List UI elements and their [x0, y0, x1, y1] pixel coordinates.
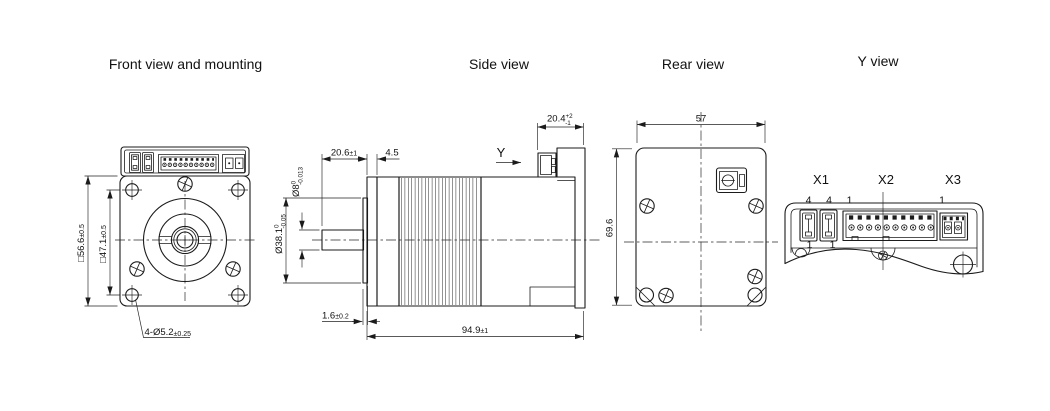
rear-screw-top-right [747, 197, 764, 214]
y-view-title: Y view [858, 53, 900, 69]
label-x3: X3 [945, 172, 961, 187]
mounting-hole-top-left [122, 180, 142, 200]
front-body [115, 175, 255, 306]
front-view-title: Front view and mounting [109, 56, 262, 72]
dim-body-width: □56.6±0.5 [76, 176, 118, 306]
front-flange [367, 177, 377, 306]
y-connector-x1 [800, 210, 837, 241]
side-body [312, 148, 600, 308]
dim-flange-thickness: 4.5 [357, 148, 400, 176]
dim-hole-spacing-text: □47.1±0.5 [98, 225, 109, 263]
left-boss-hole [796, 249, 807, 254]
dim-mounting-holes: 4-Ø5.2±0.25 [136, 300, 192, 339]
mounting-hole-bottom-right [228, 285, 248, 305]
rear-screw-top-left [638, 197, 655, 214]
dim-rear-height-text: 69.6 [605, 219, 616, 238]
dim-mounting-holes-text: 4-Ø5.2±0.25 [145, 327, 192, 338]
y-connector-x2 [843, 211, 937, 241]
dim-hole-spacing: □47.1±0.5 [98, 190, 121, 295]
technical-drawing-page: Front view and mounting [0, 0, 1050, 411]
dim-total-length: 94.9±1 [367, 311, 584, 340]
rear-body [624, 112, 778, 332]
x1-connector-b [820, 210, 837, 241]
dim-total-length-text: 94.9±1 [462, 325, 488, 336]
mounting-hole-top-right [228, 180, 248, 200]
rear-view-title: Rear view [662, 56, 725, 72]
dim-rear-width-text: 57 [696, 114, 707, 125]
dim-flange-thickness-text: 4.5 [385, 148, 398, 159]
dim-pilot-diameter: Ø38.10-0.05 [273, 198, 361, 283]
dim-body-width-text: □56.6±0.5 [76, 224, 87, 262]
screw-right [224, 260, 241, 277]
dim-shaft-diameter-text: Ø80-0.013 [290, 166, 304, 197]
front-connector-x1a [130, 153, 141, 173]
dim-shaft-diameter: Ø80-0.013 [290, 166, 319, 267]
label-x1: X1 [813, 172, 829, 187]
screw-left [128, 260, 145, 277]
x1a-pin-bottom: 1 [807, 239, 813, 251]
side-view: Side view Y [273, 56, 600, 340]
y-marker-text: Y [497, 145, 506, 160]
front-view: Front view and mounting [76, 56, 262, 338]
label-x2: X2 [878, 172, 894, 187]
x1-connector-a [800, 210, 817, 241]
side-connector-bump [538, 153, 556, 177]
mounting-hole-bottom-left [122, 285, 142, 305]
dim-pilot-diameter-text: Ø38.10-0.05 [273, 214, 287, 254]
x1b-pin-bottom: 1 [830, 239, 836, 251]
x3-pin-first: 1 [939, 195, 945, 207]
gearbox-ribbed-housing [399, 177, 481, 306]
front-connector-strip [121, 147, 249, 176]
front-connector-x1b [143, 153, 154, 173]
x1b-pin-top: 4 [826, 195, 832, 207]
rear-hole-bottom-right [748, 288, 762, 302]
y-view: Y view [785, 53, 983, 278]
dim-connector-height-text: 20.4+2-1 [547, 113, 573, 127]
dim-pilot-height-text: 1.6±0.2 [322, 311, 349, 322]
rotary-switch [717, 168, 747, 193]
front-connector-x3 [223, 155, 245, 173]
dim-shaft-length-text: 20.6±1 [331, 148, 357, 159]
gearbox-front-section [377, 177, 399, 306]
rear-screw-bottom-right [746, 268, 763, 285]
rear-hole-bottom-left [640, 288, 654, 302]
x2-pin-first: 1 [847, 195, 853, 207]
view-direction-y: Y [496, 145, 521, 163]
x1a-pin-top: 4 [806, 195, 812, 207]
front-connector-x2 [159, 155, 219, 173]
dim-connector-height: 20.4+2-1 [538, 113, 584, 150]
y-connector-x3 [940, 213, 968, 240]
dim-rear-height: 69.6 [605, 149, 633, 305]
side-view-title: Side view [469, 56, 530, 72]
rear-screw-bottom-left [657, 287, 674, 304]
rear-view: Rear view 57 [605, 56, 779, 332]
motor-engineering-drawing: Front view and mounting [0, 0, 1050, 411]
